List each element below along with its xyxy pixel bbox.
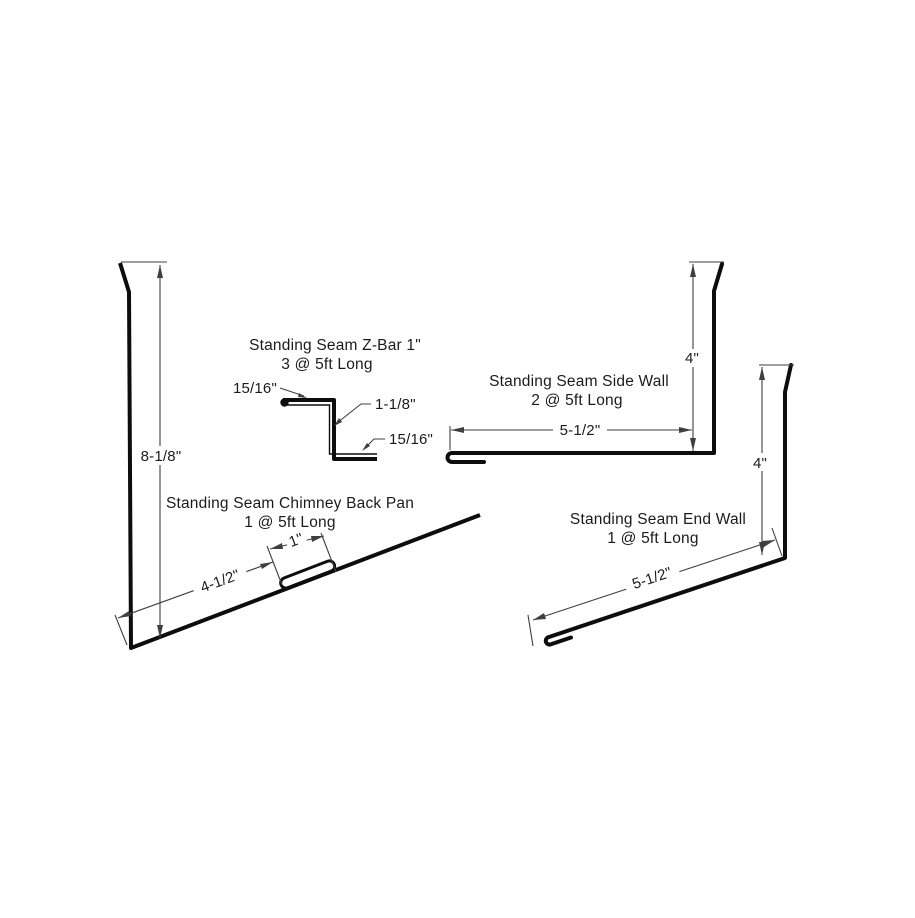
side-wall-height-dim-label: 4" bbox=[685, 350, 699, 367]
end-wall-height-arrow-top bbox=[759, 367, 765, 380]
chimney-height-dim-label: 8-1/8" bbox=[141, 448, 182, 465]
technical-drawing-canvas: 8-1/8" 4-1/2" 1" Standing Seam Chimney B… bbox=[0, 0, 915, 918]
end-wall-qty: 1 @ 5ft Long bbox=[607, 530, 698, 547]
fold-arrow-right bbox=[311, 536, 324, 542]
chimney-slope-label-group: 4-1/2" bbox=[191, 563, 250, 599]
chimney-corner-extension-line bbox=[115, 615, 127, 645]
z-bar-top-leader-arrow bbox=[298, 393, 307, 398]
end-wall-right-extension-line bbox=[772, 528, 782, 556]
side-wall-group: 4" 5-1/2" Standing Seam Side Wall 2 @ 5f… bbox=[448, 262, 725, 462]
drawing-sheet: 8-1/8" 4-1/2" 1" Standing Seam Chimney B… bbox=[0, 0, 915, 918]
end-wall-width-dim-label: 5-1/2" bbox=[630, 564, 674, 593]
side-wall-height-arrow-bottom bbox=[690, 438, 696, 451]
side-wall-title: Standing Seam Side Wall bbox=[489, 373, 669, 390]
side-wall-width-arrow-right bbox=[679, 427, 692, 433]
side-wall-qty: 2 @ 5ft Long bbox=[531, 392, 622, 409]
z-bar-profile-inner-line bbox=[283, 405, 377, 454]
z-bar-top-leg-label: 15/16" bbox=[233, 380, 277, 397]
chimney-back-pan-qty: 1 @ 5ft Long bbox=[244, 514, 335, 531]
z-bar-group: 15/16" 1-1/8" 15/16" Standing Seam Z-Bar… bbox=[233, 337, 433, 459]
end-wall-left-extension-line bbox=[528, 615, 533, 646]
z-bar-web-leader bbox=[337, 404, 371, 423]
z-bar-hem-bulb bbox=[280, 398, 288, 406]
side-wall-height-arrow-top bbox=[690, 264, 696, 277]
fold-extension-line-right bbox=[321, 533, 336, 572]
fold-arrow-left bbox=[270, 543, 283, 549]
chimney-slope-dim-label: 4-1/2" bbox=[198, 567, 242, 597]
end-wall-height-dim-label: 4" bbox=[753, 455, 767, 472]
z-bar-qty: 3 @ 5ft Long bbox=[281, 356, 372, 373]
side-wall-width-dim-label: 5-1/2" bbox=[560, 422, 601, 439]
z-bar-web-label: 1-1/8" bbox=[375, 396, 416, 413]
fold-label-group: 1" bbox=[284, 528, 309, 552]
end-wall-width-arrow-right bbox=[762, 540, 775, 547]
z-bar-title: Standing Seam Z-Bar 1" bbox=[249, 337, 421, 354]
chimney-slope-arrow-right bbox=[260, 562, 273, 569]
side-wall-width-arrow-left bbox=[451, 427, 464, 433]
chimney-back-pan-group: 8-1/8" 4-1/2" 1" Standing Seam Chimney B… bbox=[115, 262, 480, 648]
fold-extension-line-left bbox=[267, 546, 282, 585]
chimney-back-pan-title: Standing Seam Chimney Back Pan bbox=[166, 495, 414, 512]
z-bar-bottom-leg-label: 15/16" bbox=[389, 431, 433, 448]
end-wall-title: Standing Seam End Wall bbox=[570, 511, 746, 528]
end-wall-width-arrow-left bbox=[533, 613, 546, 620]
end-wall-width-label-group: 5-1/2" bbox=[623, 561, 682, 596]
chimney-height-arrow-top bbox=[157, 265, 163, 278]
